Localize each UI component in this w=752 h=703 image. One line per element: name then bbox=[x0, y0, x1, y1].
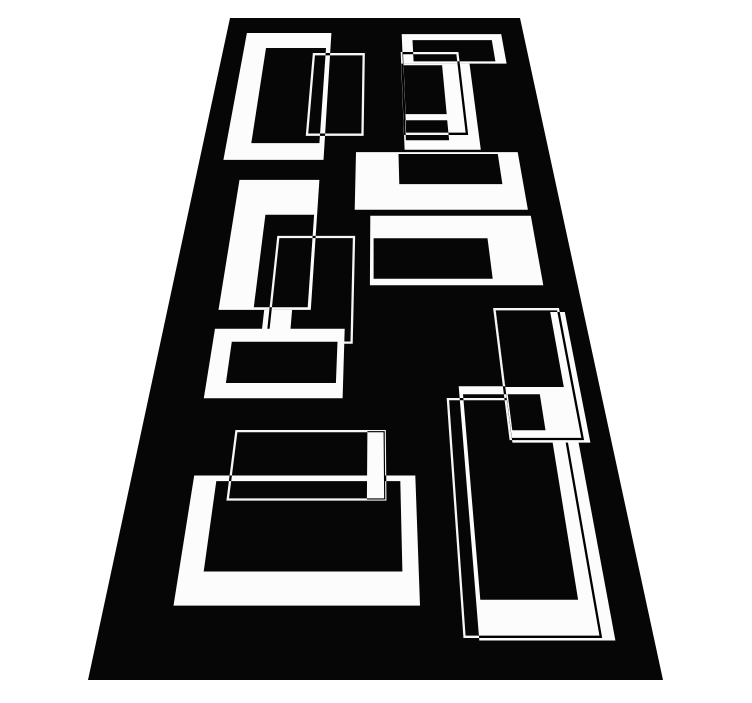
rug-product-photo bbox=[0, 0, 752, 703]
frame-top-right-hole-0 bbox=[404, 65, 447, 114]
bar-right-lower-hole-0 bbox=[374, 238, 493, 279]
ring-top-right-hole-0 bbox=[413, 40, 496, 61]
frame-top-right-hole-1 bbox=[405, 120, 449, 140]
bar-right-upper-hole-0 bbox=[399, 154, 503, 184]
bar-above-bottom-left bbox=[367, 431, 385, 499]
frame-third-row-left-hole-0 bbox=[226, 342, 338, 383]
rug-image bbox=[0, 0, 752, 703]
frame-third-row-right-hole-1 bbox=[508, 394, 546, 430]
